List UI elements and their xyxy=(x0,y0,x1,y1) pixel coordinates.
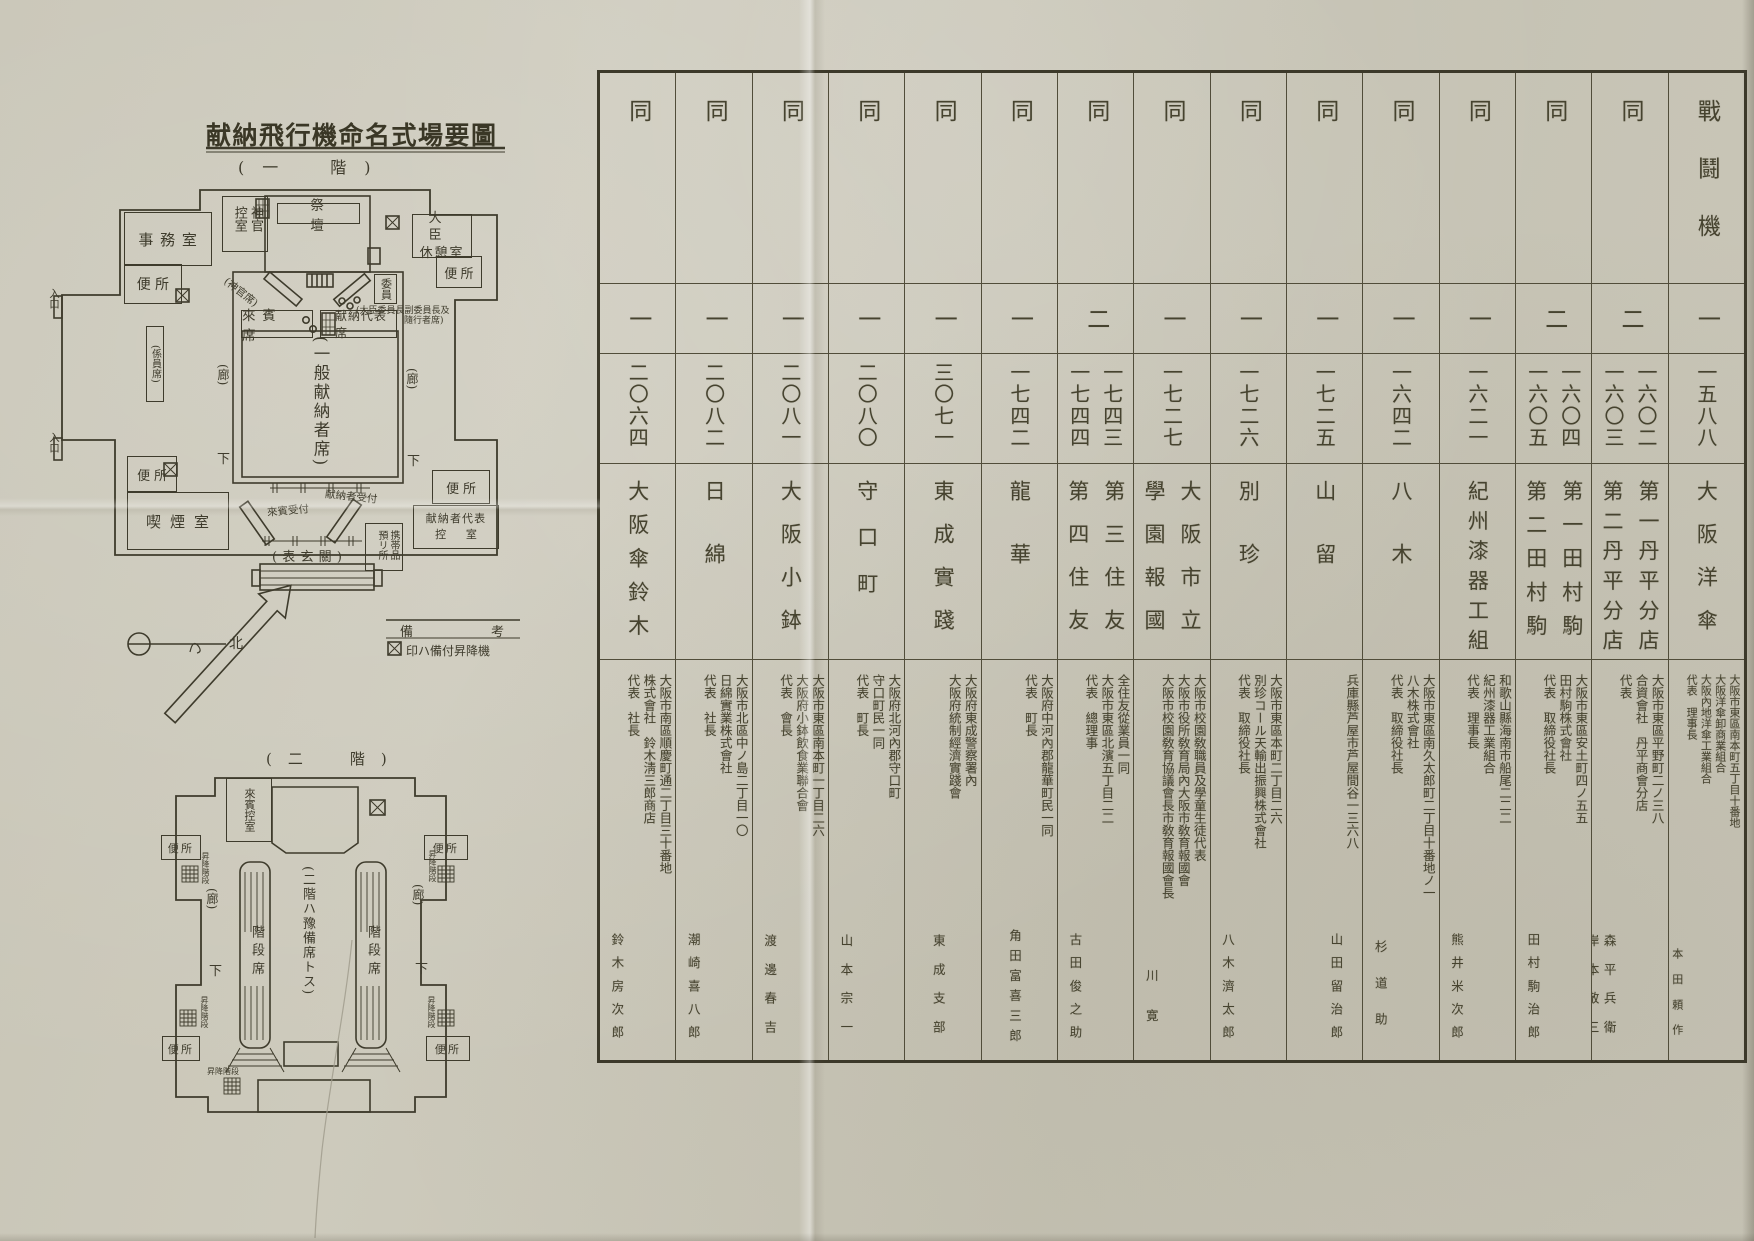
table-column: 戰鬪機 一 一五八八 大阪洋傘 大阪市東區南本町五丁目十番地大阪洋傘卸商業組合大… xyxy=(1668,73,1744,1060)
aircraft-count: 二 xyxy=(1079,307,1113,330)
scanned-document-page: { "document": { "diagram_title": "献納飛行機命… xyxy=(0,0,1754,1241)
aircraft-type: 戰鬪機 xyxy=(1689,99,1723,272)
aircraft-serial-cell: 一五八八 xyxy=(1669,354,1744,464)
donor-detail-cell: 大阪市北區中ノ島二丁目一〇日綿實業株式會社代表 社長潮崎喜八郎 xyxy=(676,660,751,1060)
donor-detail-line: 大阪洋傘卸商業組合 xyxy=(1713,674,1725,773)
entrance-label-left-upper: 入口 xyxy=(47,288,62,309)
table-column: 同 一 二〇八二 日綿 大阪市北區中ノ島二丁目一〇日綿實業株式會社代表 社長潮崎… xyxy=(675,73,751,1060)
donor-detail-line: 大阪市校園敎育協議會長市敎育報國會長 xyxy=(1160,674,1174,899)
donor-name: 第一丹平分店 xyxy=(1633,480,1663,659)
donor-detail-line: 大阪市東區北濱五丁目二二 xyxy=(1099,674,1113,824)
donor-name: 別珍 xyxy=(1233,480,1263,606)
aircraft-serial-cell: 二〇八二 xyxy=(676,354,751,464)
aircraft-serial: 一七四四 xyxy=(1065,362,1094,448)
lift-stairs-label-tr: 昇降階段 xyxy=(427,850,438,882)
table-column: 同 二 一六〇四一六〇五 第一田村駒第二田村駒 大阪市東區安土町四ノ五五田村駒株… xyxy=(1515,73,1591,1060)
aircraft-serial-cell: 一七二六 xyxy=(1211,354,1286,464)
room-altar: 祭壇 xyxy=(277,203,360,224)
donor-name-cell: 第一田村駒第二田村駒 xyxy=(1516,464,1591,660)
representative-name: 八木濟太郎 xyxy=(1220,933,1234,1052)
aircraft-count: 一 xyxy=(1689,307,1723,330)
aircraft-serial: 一六四二 xyxy=(1387,362,1416,448)
aircraft-serial: 一六二一 xyxy=(1463,362,1492,448)
donor-name: 紀州漆器工組 xyxy=(1462,480,1492,659)
donor-name-cell: 守口町 xyxy=(829,464,904,660)
committee-note-line2: 隨行者席) xyxy=(404,313,444,326)
donor-name: 大阪傘鈴木 xyxy=(623,480,653,648)
table-column: 同 一 一七二七 大阪市立學園報國 大阪市校園敎職員及學童生徒代表大阪市役所敎育… xyxy=(1133,73,1209,1060)
donor-detail-line: 大阪市東區南久太郎町二丁目十番地ノ一 xyxy=(1421,674,1435,899)
aircraft-serial: 二〇八〇 xyxy=(852,362,881,448)
aircraft-type-cell: 同 xyxy=(982,73,1057,284)
donor-detail-line: 大阪府東成警察署內 xyxy=(963,674,977,787)
aircraft-type: 同 xyxy=(1613,99,1647,122)
donor-name-cell: 第三住友第四住友 xyxy=(1058,464,1133,660)
donor-detail-line: 代表 取締役社長 xyxy=(1389,674,1403,774)
donor-name: 大阪小鉢 xyxy=(775,480,805,652)
donor-detail-line: 大阪市南區順慶町通二丁目三十番地 xyxy=(657,674,671,874)
aircraft-count-cell: 二 xyxy=(1058,284,1133,354)
donor-detail-cell: 大阪市東區南久太郎町二丁目十番地ノ一八木株式會社代表 取締役社長杉道助 xyxy=(1363,660,1438,1060)
room-toilet2-bottom-left: 便所 xyxy=(162,1036,200,1061)
aircraft-serial: 三〇七一 xyxy=(929,362,958,448)
donor-name: 山留 xyxy=(1310,480,1340,606)
donor-detail-line: 大阪府小鉢飲食業聯合會 xyxy=(794,674,808,812)
donor-name: 八木 xyxy=(1386,480,1416,606)
donor-name-cell: 龍華 xyxy=(982,464,1057,660)
down2-label-left: 下 xyxy=(209,960,222,979)
aircraft-type: 同 xyxy=(1384,99,1418,122)
donor-detail-line: 代表 町長 xyxy=(1023,674,1037,737)
donor-detail-cell: 大阪市東區南本町五丁目十番地大阪洋傘卸商業組合大阪內地洋傘工業組合代表 理事長本… xyxy=(1669,660,1744,1060)
aircraft-type: 同 xyxy=(1537,99,1571,122)
donor-detail-line: 和歌山縣海南市船尾二二二 xyxy=(1497,674,1511,824)
floor2-label: (二 階) xyxy=(266,748,403,769)
aircraft-count-cell: 二 xyxy=(1592,284,1667,354)
donor-name-cell: 大阪市立學園報國 xyxy=(1134,464,1209,660)
room-guest-waiting: 來賓控室 xyxy=(226,778,272,842)
table-column: 同 二 一七四三一七四四 第三住友第四住友 全住友從業員一同大阪市東區北濱五丁目… xyxy=(1057,73,1133,1060)
aircraft-serial: 一六〇四 xyxy=(1556,362,1585,448)
donor-detail-line: 代表 取締役社長 xyxy=(1541,674,1555,774)
donor-detail-cell: 大阪市校園敎職員及學童生徒代表大阪市役所敎育局內大阪市敎育報國會大阪市校園敎育協… xyxy=(1134,660,1209,1060)
down-label-left: 下 xyxy=(217,448,230,467)
representative-name: 潮崎喜八郎 xyxy=(686,933,700,1052)
table-column: 同 一 二〇八一 大阪小鉢 大阪市東區南本町一丁目二六大阪府小鉢飲食業聯合會代表… xyxy=(752,73,828,1060)
aircraft-count: 二 xyxy=(1613,307,1647,330)
representative-name: 杉道助 xyxy=(1373,940,1387,1052)
aircraft-serial: 一七二五 xyxy=(1310,362,1339,448)
aircraft-count-cell: 一 xyxy=(1363,284,1438,354)
aircraft-count-cell: 一 xyxy=(1211,284,1286,354)
representative-name: 古田俊之助 xyxy=(1067,933,1081,1052)
aircraft-type-cell: 同 xyxy=(1134,73,1209,284)
aircraft-type-cell: 同 xyxy=(676,73,751,284)
donor-detail-line: 代表 取締役社長 xyxy=(1236,674,1250,774)
table-column: 同 一 一七四二 龍華 大阪府中河內郡龍華町民一同代表 町長角田富喜三郎 xyxy=(981,73,1057,1060)
aircraft-count-cell: 一 xyxy=(600,284,675,354)
lift-stairs-label-bl: 昇降階段 xyxy=(199,996,210,1028)
aircraft-serial: 二〇八二 xyxy=(700,362,729,448)
room-cloakroom: 携帯品預リ所 xyxy=(365,523,403,571)
donor-detail-line: 大阪市東區平野町二ノ三八 xyxy=(1650,674,1664,824)
representative-name: 田村駒治郎 xyxy=(1525,933,1539,1052)
donor-name: 守口町 xyxy=(852,480,882,619)
aircraft-type-cell: 同 xyxy=(1287,73,1362,284)
aircraft-serial-cell: 一六〇二一六〇三 xyxy=(1592,354,1667,464)
aircraft-type-cell: 同 xyxy=(1211,73,1286,284)
donor-name: 東成實踐 xyxy=(928,480,958,652)
aircraft-count-cell: 一 xyxy=(982,284,1057,354)
aircraft-type: 同 xyxy=(1231,99,1265,122)
aircraft-type-cell: 同 xyxy=(600,73,675,284)
aircraft-serial-cell: 二〇六四 xyxy=(600,354,675,464)
donor-detail-line: 代表 會長 xyxy=(778,674,792,737)
donor-name-cell: 八木 xyxy=(1363,464,1438,660)
aircraft-count: 一 xyxy=(1308,307,1342,330)
table-column: 同 二 一六〇二一六〇三 第一丹平分店第二丹平分店 大阪市東區平野町二ノ三八合資… xyxy=(1591,73,1667,1060)
aircraft-count: 一 xyxy=(926,307,960,330)
donor-name: 第三住友 xyxy=(1099,480,1129,652)
donor-name-cell: 紀州漆器工組 xyxy=(1440,464,1515,660)
aircraft-serial: 一七四三 xyxy=(1098,362,1127,448)
floor1-label: (一 階) xyxy=(238,154,389,178)
down2-label-right: 下 xyxy=(415,958,428,977)
donor-detail-cell: 大阪府東成警察署內大阪府統制經濟實踐會東成支部 xyxy=(905,660,980,1060)
donor-name: 大阪市立 xyxy=(1175,480,1205,652)
aircraft-type: 同 xyxy=(621,99,655,122)
aircraft-type: 同 xyxy=(1155,99,1189,122)
donor-detail-cell: 大阪府中河內郡龍華町民一同代表 町長角田富喜三郎 xyxy=(982,660,1057,1060)
donor-detail-line: 代表 社長 xyxy=(702,674,716,737)
aircraft-serial: 一六〇二 xyxy=(1632,362,1661,448)
aircraft-count-cell: 二 xyxy=(1516,284,1591,354)
room-toilet-bottom-right: 便所 xyxy=(432,470,490,504)
corridor2-label-right: (廊) xyxy=(410,884,427,905)
donor-name: 第一田村駒 xyxy=(1557,480,1587,648)
donor-name-cell: 山留 xyxy=(1287,464,1362,660)
aircraft-type-cell: 戰鬪機 xyxy=(1669,73,1744,284)
donor-detail-line: 大阪市東區南本町五丁目十番地 xyxy=(1728,674,1740,828)
room-donor-rep-waiting-line2: 控室 xyxy=(415,527,496,544)
donor-detail-line: 大阪市東區本町二丁目二六 xyxy=(1268,674,1282,824)
room-office: 事務室 xyxy=(124,212,212,266)
donor-detail-line: 大阪市東區安土町四ノ五五 xyxy=(1573,674,1587,824)
aircraft-count: 一 xyxy=(773,307,807,330)
lift-stairs-label-bc: 昇降階段 xyxy=(207,1066,239,1077)
aircraft-serial-cell: 二〇八一 xyxy=(753,354,828,464)
aircraft-type: 同 xyxy=(850,99,884,122)
aircraft-serial-cell: 三〇七一 xyxy=(905,354,980,464)
down-label-right: 下 xyxy=(407,450,420,469)
aircraft-count: 一 xyxy=(1460,307,1494,330)
donor-detail-line: 紀州漆器工業組合 xyxy=(1481,674,1495,774)
aircraft-serial: 一六〇三 xyxy=(1599,362,1628,448)
representative-name: 鈴木房次郎 xyxy=(609,933,623,1052)
aircraft-type: 同 xyxy=(926,99,960,122)
donor-detail-line: 代表 xyxy=(1618,674,1632,699)
aircraft-serial-cell: 一六四二 xyxy=(1363,354,1438,464)
aircraft-count-cell: 一 xyxy=(676,284,751,354)
aircraft-count: 一 xyxy=(697,307,731,330)
table-column: 同 一 二〇六四 大阪傘鈴木 大阪市南區順慶町通二丁目三十番地株式會社 鈴木淸三… xyxy=(600,73,675,1060)
room-priest-waiting: 神官控室 xyxy=(222,196,268,252)
donor-detail-cell: 大阪市東區安土町四ノ五五田村駒株式會社代表 取締役社長田村駒治郎 xyxy=(1516,660,1591,1060)
aircraft-type-cell: 同 xyxy=(1592,73,1667,284)
aircraft-type-cell: 同 xyxy=(829,73,904,284)
aircraft-serial-cell: 一六〇四一六〇五 xyxy=(1516,354,1591,464)
donor-detail-line: 日綿實業株式會社 xyxy=(718,674,732,774)
room-donor-rep-seats: 献納代表席 xyxy=(320,310,397,338)
donor-detail-line: 守口町民一同 xyxy=(870,674,884,749)
donor-detail-line: 大阪內地洋傘工業組合 xyxy=(1699,674,1711,784)
donor-name-cell: 別珍 xyxy=(1211,464,1286,660)
donor-detail-line: 株式會社 鈴木淸三郎商店 xyxy=(641,674,655,824)
committee-seat-label: 委員 xyxy=(374,274,397,304)
room-smoking: 喫煙室 xyxy=(127,492,229,550)
aircraft-serial-cell: 一七二七 xyxy=(1134,354,1209,464)
floor2-note-label: (二階ハ豫備席トス) xyxy=(298,866,317,1056)
donor-name: 日綿 xyxy=(699,480,729,606)
donor-detail-line: 別珍コール天輸出振興株式會社 xyxy=(1252,674,1266,849)
front-entrance-label: (表玄關) xyxy=(272,546,347,565)
aircraft-serial: 二〇六四 xyxy=(623,362,652,448)
aircraft-type-cell: 同 xyxy=(1363,73,1438,284)
aircraft-serial: 一七二六 xyxy=(1234,362,1263,448)
donor-detail-line: 大阪市東區南本町一丁目二六 xyxy=(810,674,824,837)
donor-name: 第二丹平分店 xyxy=(1597,480,1627,659)
donor-name-cell: 第一丹平分店第二丹平分店 xyxy=(1592,464,1667,660)
donor-detail-cell: 大阪市東區南本町一丁目二六大阪府小鉢飲食業聯合會代表 會長渡邊春吉 xyxy=(753,660,828,1060)
aircraft-serial-cell: 一七二五 xyxy=(1287,354,1362,464)
aircraft-serial-cell: 一七四二 xyxy=(982,354,1057,464)
room-toilet-top-right: 便所 xyxy=(436,256,482,288)
donor-detail-cell: 大阪市南區順慶町通二丁目三十番地株式會社 鈴木淸三郎商店代表 社長鈴木房次郎 xyxy=(600,660,675,1060)
aircraft-serial-cell: 一七四三一七四四 xyxy=(1058,354,1133,464)
aircraft-serial: 一五八八 xyxy=(1692,362,1721,448)
legend-note: 印ハ備付昇降機 xyxy=(406,642,490,659)
donor-detail-line: 代表 理事長 xyxy=(1465,674,1479,749)
donor-name: 第四住友 xyxy=(1063,480,1093,652)
aircraft-count-cell: 一 xyxy=(829,284,904,354)
donor-detail-line: 大阪市役所敎育局內大阪市敎育報國會 xyxy=(1176,674,1190,887)
table-column: 同 一 一六四二 八木 大阪市東區南久太郎町二丁目十番地ノ一八木株式會社代表 取… xyxy=(1362,73,1438,1060)
aircraft-serial: 一七四二 xyxy=(1005,362,1034,448)
donor-name-cell: 大阪洋傘 xyxy=(1669,464,1744,660)
aircraft-count-cell: 一 xyxy=(905,284,980,354)
aircraft-type: 同 xyxy=(697,99,731,122)
donor-detail-cell: 大阪市東區平野町二ノ三八合資會社 丹平商會分店代表森平兵衛岸本敬三 xyxy=(1592,660,1667,1060)
donor-name: 龍華 xyxy=(1004,480,1034,606)
donor-name-cell: 大阪小鉢 xyxy=(753,464,828,660)
donor-detail-line: 八木株式會社 xyxy=(1405,674,1419,749)
aircraft-type-cell: 同 xyxy=(1440,73,1515,284)
lift-stairs-label-tl: 昇降階段 xyxy=(200,852,211,884)
stair-seats-label-right: 階段席 xyxy=(363,925,382,980)
donor-detail-line: 大阪府中河內郡龍華町民一同 xyxy=(1039,674,1053,837)
guest-reception-label: 來賓受付 xyxy=(266,501,309,520)
aircraft-count: 一 xyxy=(850,307,884,330)
donor-table: 戰鬪機 一 一五八八 大阪洋傘 大阪市東區南本町五丁目十番地大阪洋傘卸商業組合大… xyxy=(597,70,1747,1063)
table-column: 同 一 一七二五 山留 兵庫縣芦屋市芦屋間谷一三六八山田留治郎 xyxy=(1286,73,1362,1060)
aircraft-count-cell: 一 xyxy=(1440,284,1515,354)
entrance-label-left-lower: 入口 xyxy=(47,432,62,453)
aircraft-type: 同 xyxy=(1460,99,1494,122)
representative-name: 森平兵衛 xyxy=(1602,934,1616,1052)
donor-detail-line: 代表 總理事 xyxy=(1083,674,1097,749)
donor-detail-line: 合資會社 丹平商會分店 xyxy=(1634,674,1648,812)
donor-name: 大阪洋傘 xyxy=(1691,480,1721,652)
room-minister-rest: 大臣 休憩室 xyxy=(412,214,472,258)
table-column: 同 一 三〇七一 東成實踐 大阪府東成警察署內大阪府統制經濟實踐會東成支部 xyxy=(904,73,980,1060)
donor-name: 第二田村駒 xyxy=(1521,480,1551,648)
donor-detail-cell: 大阪市東區本町二丁目二六別珍コール天輸出振興株式會社代表 取締役社長八木濟太郎 xyxy=(1211,660,1286,1060)
donor-detail-line: 大阪府統制經濟實踐會 xyxy=(947,674,961,799)
representative-name: 本田頼作 xyxy=(1670,948,1682,1052)
donor-detail-line: 代表 社長 xyxy=(625,674,639,737)
representative-name: 渡邊春吉 xyxy=(762,934,776,1052)
representative-name: 熊井米次郎 xyxy=(1449,933,1463,1052)
donor-name: 學園報國 xyxy=(1139,480,1169,652)
aircraft-serial-cell: 二〇八〇 xyxy=(829,354,904,464)
general-donor-seats-label: (一般献納者席) xyxy=(308,336,332,486)
aircraft-type: 同 xyxy=(773,99,807,122)
representative-name: 岸本敬三 xyxy=(1592,934,1598,1052)
aircraft-count: 一 xyxy=(621,307,655,330)
donor-detail-cell: 和歌山縣海南市船尾二二二紀州漆器工業組合代表 理事長熊井米次郎 xyxy=(1440,660,1515,1060)
donor-detail-line: 代表 理事長 xyxy=(1685,674,1697,740)
donor-detail-cell: 兵庫縣芦屋市芦屋間谷一三六八山田留治郎 xyxy=(1287,660,1362,1060)
aircraft-count: 一 xyxy=(1384,307,1418,330)
representative-name: 山田留治郎 xyxy=(1328,933,1342,1052)
donor-detail-line: 大阪府北河內郡守口町 xyxy=(886,674,900,799)
aircraft-count: 一 xyxy=(1002,307,1036,330)
legend-title: 備考 xyxy=(400,621,504,640)
lift-stairs-label-br: 昇降階段 xyxy=(426,996,437,1028)
corridor-label-left: (廊) xyxy=(215,364,232,385)
aircraft-serial: 一六〇五 xyxy=(1523,362,1552,448)
representative-name: 川寛 xyxy=(1144,969,1158,1052)
representative-name: 角田富喜三郎 xyxy=(1007,929,1021,1052)
room-toilet2-bottom-right: 便所 xyxy=(426,1036,470,1061)
donor-detail-cell: 大阪府北河內郡守口町守口町民一同代表 町長山本宗一 xyxy=(829,660,904,1060)
room-donor-rep-waiting: 献納者代表 控室 xyxy=(413,505,499,549)
aircraft-count-cell: 一 xyxy=(753,284,828,354)
donor-detail-line: 代表 町長 xyxy=(854,674,868,737)
donor-name-cell: 大阪傘鈴木 xyxy=(600,464,675,660)
aircraft-type-cell: 同 xyxy=(753,73,828,284)
donor-detail-line: 大阪市北區中ノ島二丁目一〇 xyxy=(734,674,748,837)
table-column: 同 一 一六二一 紀州漆器工組 和歌山縣海南市船尾二二二紀州漆器工業組合代表 理… xyxy=(1439,73,1515,1060)
aircraft-type: 同 xyxy=(1002,99,1036,122)
donor-detail-line: 全住友從業員一同 xyxy=(1115,674,1129,774)
aircraft-count-cell: 一 xyxy=(1134,284,1209,354)
corridor-label-right: (廊) xyxy=(404,368,421,389)
donor-detail-line: 兵庫縣芦屋市芦屋間谷一三六八 xyxy=(1344,674,1358,849)
aircraft-count: 一 xyxy=(1155,307,1189,330)
donor-name-cell: 東成實踐 xyxy=(905,464,980,660)
aircraft-serial-cell: 一六二一 xyxy=(1440,354,1515,464)
representative-name: 東成支部 xyxy=(931,934,945,1052)
representative-name: 山本宗一 xyxy=(838,934,852,1052)
aircraft-count: 二 xyxy=(1537,307,1571,330)
north-label: 北 xyxy=(229,633,243,653)
aircraft-count-cell: 一 xyxy=(1669,284,1744,354)
aircraft-type: 同 xyxy=(1079,99,1113,122)
aircraft-type-cell: 同 xyxy=(1516,73,1591,284)
donor-reception-label: 献納者受付 xyxy=(324,486,378,506)
aircraft-type-cell: 同 xyxy=(905,73,980,284)
donor-name-cell: 日綿 xyxy=(676,464,751,660)
aircraft-count-cell: 一 xyxy=(1287,284,1362,354)
staff-seats-label: (係員席) xyxy=(146,326,164,402)
table-column: 同 一 二〇八〇 守口町 大阪府北河內郡守口町守口町民一同代表 町長山本宗一 xyxy=(828,73,904,1060)
room-toilet-bottom-left: 便所 xyxy=(127,456,177,492)
aircraft-count: 一 xyxy=(1231,307,1265,330)
donor-detail-line: 田村駒株式會社 xyxy=(1557,674,1571,762)
corridor2-label-left: (廊) xyxy=(204,888,221,909)
room-donor-rep-waiting-line1: 献納者代表 xyxy=(426,511,487,528)
donor-detail-cell: 全住友從業員一同大阪市東區北濱五丁目二二代表 總理事古田俊之助 xyxy=(1058,660,1133,1060)
aircraft-type-cell: 同 xyxy=(1058,73,1133,284)
stair-seats-label-left: 階段席 xyxy=(247,925,266,980)
aircraft-type: 同 xyxy=(1308,99,1342,122)
diagram-title: 献納飛行機命名式場要圖 xyxy=(206,116,498,152)
aircraft-serial: 一七二七 xyxy=(1158,362,1187,448)
room-toilet-top-left: 便所 xyxy=(124,264,182,304)
aircraft-serial: 二〇八一 xyxy=(776,362,805,448)
donor-detail-line: 大阪市校園敎職員及學童生徒代表 xyxy=(1192,674,1206,862)
table-column: 同 一 一七二六 別珍 大阪市東區本町二丁目二六別珍コール天輸出振興株式會社代表… xyxy=(1210,73,1286,1060)
room-toilet2-left: 便所 xyxy=(161,835,201,860)
room-guest-seats: 來賓席 xyxy=(241,310,313,338)
room-minister-rest-line1: 大臣 xyxy=(413,210,471,245)
